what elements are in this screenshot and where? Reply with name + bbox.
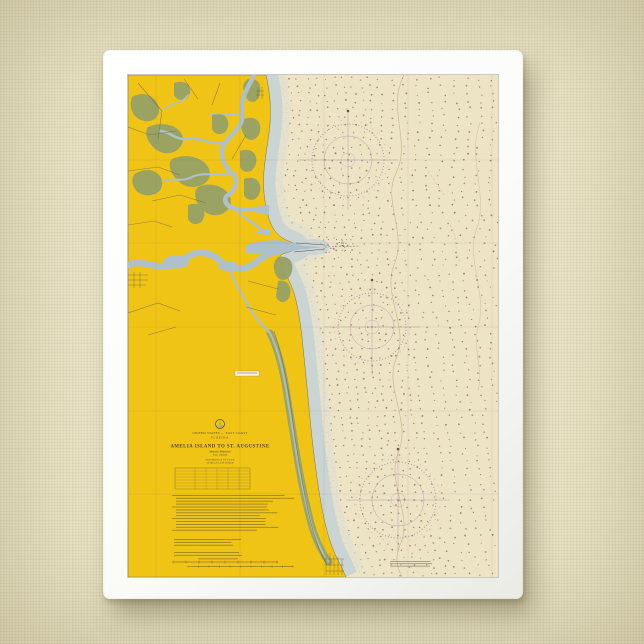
chart-country-line: UNITED STATES — EAST COAST [192, 431, 247, 435]
chart-title: AMELIA ISLAND TO ST. AUGUSTINE [170, 445, 269, 450]
chart-state-line: FLORIDA [211, 437, 229, 440]
chart-soundings-line-2: AT MEAN LOW WATER [206, 461, 234, 464]
chart-artwork: ⚓ UNITED STATES — EAST COAST FLORIDA AME… [128, 75, 498, 577]
svg-text:⚓: ⚓ [217, 421, 224, 428]
chart-soundings-line-1: SOUNDINGS IN FEET [205, 458, 235, 461]
chart-scale-line: Scale 1:80,000 [213, 454, 228, 457]
wall-background: ⚓ UNITED STATES — EAST COAST FLORIDA AME… [0, 0, 644, 644]
nautical-chart: ⚓ UNITED STATES — EAST COAST FLORIDA AME… [128, 75, 498, 577]
land-label-box [235, 371, 259, 376]
picture-frame: ⚓ UNITED STATES — EAST COAST FLORIDA AME… [103, 50, 523, 599]
